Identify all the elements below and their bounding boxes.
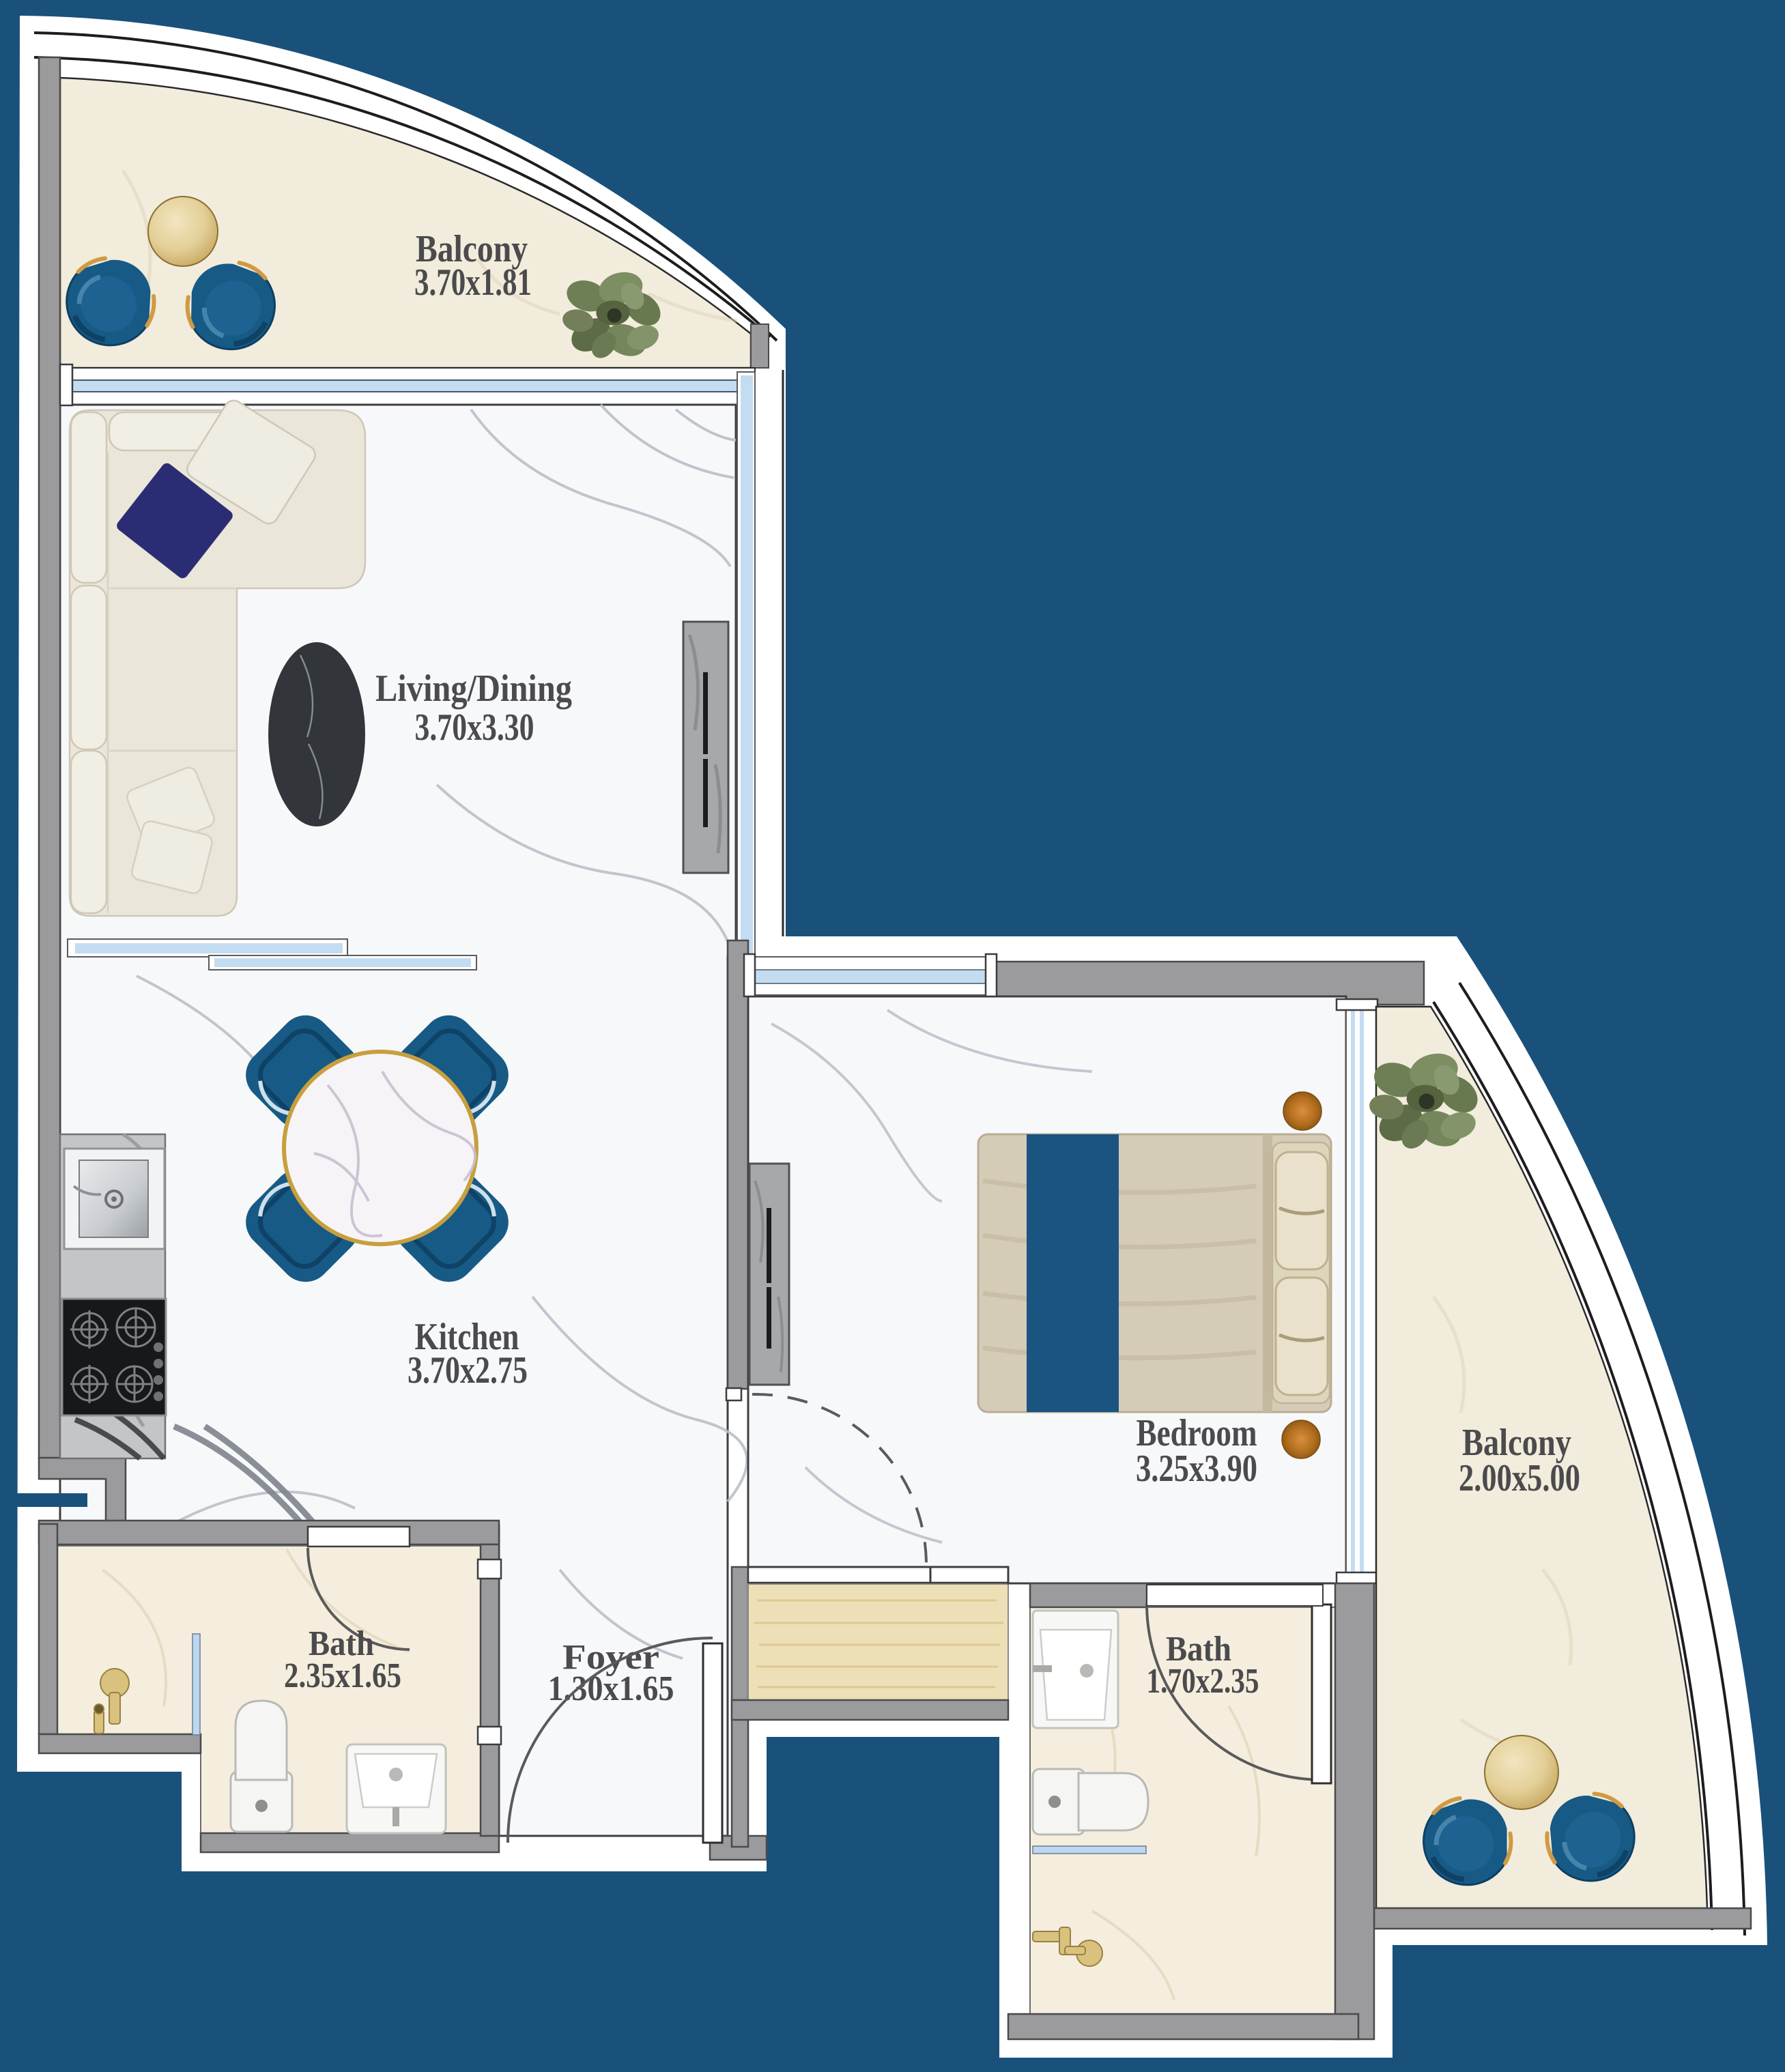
svg-text:Living/Dining: Living/Dining: [375, 667, 572, 710]
svg-text:2.35x1.65: 2.35x1.65: [284, 1656, 401, 1695]
svg-text:1.70x2.35: 1.70x2.35: [1147, 1662, 1259, 1701]
svg-text:3.70x1.81: 3.70x1.81: [414, 261, 532, 304]
svg-text:3.70x2.75: 3.70x2.75: [408, 1349, 528, 1392]
svg-text:2.00x5.00: 2.00x5.00: [1459, 1457, 1580, 1499]
svg-text:3.25x3.90: 3.25x3.90: [1136, 1448, 1257, 1490]
svg-text:3.70x3.30: 3.70x3.30: [415, 706, 534, 749]
svg-text:1.30x1.65: 1.30x1.65: [548, 1669, 674, 1708]
